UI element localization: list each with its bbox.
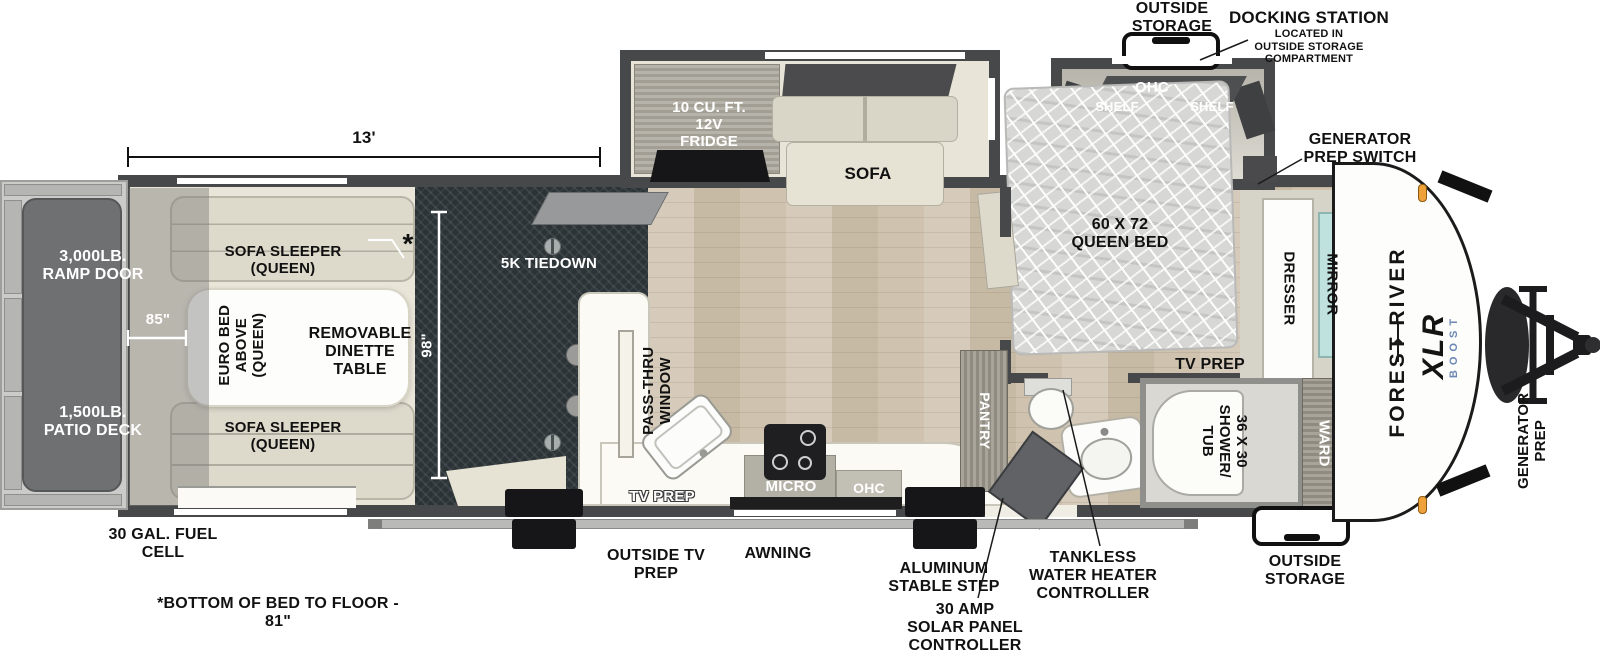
awning-end	[368, 519, 382, 529]
garage-depth-dim-label: 98"	[420, 325, 437, 365]
fuel-cell-label: 30 GAL. FUEL CELL	[103, 526, 223, 562]
model-block: XLR BOOST	[1416, 276, 1460, 416]
kitchen-ohc-label: OHC	[838, 481, 900, 497]
kitchen-window-strip	[730, 497, 902, 509]
kitchen-tv-prep-label: TV PREP	[617, 489, 707, 506]
ward-label: WARD	[1315, 413, 1332, 473]
brand-model: XLR	[1417, 313, 1451, 379]
pass-thru-window	[618, 330, 634, 458]
entry-step	[905, 487, 985, 517]
stable-step-label: ALUMINUM STABLE STEP	[874, 560, 1014, 596]
storage-handle-icon	[1284, 534, 1320, 541]
dresser-label: DRESSER	[1280, 243, 1297, 333]
sofa-slide-side-window	[988, 78, 995, 140]
sofa-sleeper-top-label: SOFA SLEEPER (QUEEN)	[213, 244, 353, 278]
outside-tv-prep-step	[512, 519, 576, 549]
pantry-label: PANTRY	[976, 386, 992, 456]
bed-height-note: *BOTTOM OF BED TO FLOOR - 81"	[143, 595, 413, 631]
fridge-label: 10 CU. FT. 12V FRIDGE	[649, 100, 769, 150]
docking-station-title: DOCKING STATION	[1219, 8, 1399, 27]
sofa-back	[772, 96, 958, 142]
vanity-basin	[1078, 434, 1135, 483]
sofa-window	[780, 64, 962, 100]
bath-vanity	[1059, 415, 1151, 500]
rv-floorplan: OUTSIDE STORAGE DOCKING STATION LOCATED …	[0, 0, 1600, 666]
patio-deck	[22, 198, 122, 492]
bedroom-ohc-label: OHC	[1122, 80, 1182, 97]
fridge-base	[650, 150, 770, 182]
clearance-light-icon	[1418, 496, 1427, 514]
awning-label: AWNING	[733, 545, 823, 563]
burner-icon	[772, 454, 788, 470]
outside-storage-top-label: OUTSIDE STORAGE	[1112, 0, 1232, 36]
euro-bed-label: EURO BED ABOVE (QUEEN)	[217, 290, 267, 400]
brand-block: ◆ FOREST RIVER	[1376, 222, 1420, 462]
ramp-rail-top	[4, 184, 122, 196]
solar-controller-label: 30 AMP SOLAR PANEL CONTROLLER	[895, 601, 1035, 655]
bedroom-tv-prep-label: TV PREP	[1160, 356, 1260, 374]
outside-tv-prep-label: OUTSIDE TV PREP	[596, 547, 716, 583]
storage-handle-icon	[1152, 37, 1190, 44]
stove	[764, 424, 826, 480]
fuel-cell-platform	[178, 486, 356, 508]
bedroom-slide-window-strip	[1112, 56, 1232, 64]
ramp-rail-left	[4, 396, 22, 490]
ramp-rail-bottom	[4, 494, 122, 506]
ramp-rail-left	[4, 200, 22, 294]
burner-icon	[798, 456, 812, 470]
mirror-label: MIRROR	[1323, 244, 1340, 324]
ramp-door-label: 3,000LB. RAMP DOOR	[30, 248, 156, 284]
asterisk-mark: *	[396, 228, 420, 259]
clearance-light-icon	[1418, 184, 1427, 202]
bottom-wall-window-left	[174, 509, 347, 515]
brand-trim: BOOST	[1448, 314, 1460, 378]
ramp-opening-dim-label: 85"	[138, 312, 178, 329]
ramp-interior-overlay	[129, 188, 209, 506]
shelf-right-label: SHELF	[1182, 100, 1242, 115]
bedroom-wall-upper	[1000, 187, 1011, 237]
bottom-wall-window-right	[734, 510, 896, 516]
pass-thru-label: PASS-THRU WINDOW	[641, 336, 675, 446]
faucet-icon	[1100, 427, 1109, 436]
queen-bed-label: 60 X 72 QUEEN BED	[1050, 216, 1190, 252]
tiedown-label: 5K TIEDOWN	[489, 256, 609, 273]
burner-icon	[800, 430, 816, 446]
dinette-label: REMOVABLE DINETTE TABLE	[300, 325, 420, 379]
sofa-sleeper-bottom-label: SOFA SLEEPER (QUEEN)	[213, 420, 353, 454]
main-wall-window-bed-right	[1243, 156, 1277, 182]
docking-station-sub: LOCATED IN OUTSIDE STORAGE COMPARTMENT	[1229, 28, 1389, 66]
toilet	[1028, 388, 1074, 430]
tiedown-anchor-icon	[544, 434, 561, 451]
length-dimension	[128, 147, 600, 167]
ramp-rail-left	[4, 298, 22, 392]
sofa-slide-window-strip	[765, 52, 965, 59]
tv-cabinet	[531, 192, 669, 225]
generator-prep-switch-label: GENERATOR PREP SWITCH	[1290, 131, 1430, 167]
top-wall-window	[177, 178, 347, 184]
entry-step	[913, 519, 977, 549]
shelf-left-label: SHELF	[1087, 100, 1147, 115]
tankless-label: TANKLESS WATER HEATER CONTROLLER	[1023, 549, 1163, 603]
shower-tub-label: 36 X 30 SHOWER/ TUB	[1199, 401, 1249, 481]
cap-stripe-top	[1438, 170, 1493, 202]
outside-storage-bottom-label: OUTSIDE STORAGE	[1245, 553, 1365, 589]
awning-end	[1184, 519, 1198, 529]
outside-tv-prep-step	[505, 489, 583, 517]
tiedown-anchor-icon	[544, 238, 561, 255]
awning-bar	[368, 519, 1198, 529]
generator-prep-label: GENERATOR PREP	[1516, 386, 1550, 496]
micro-label: MICRO	[749, 479, 833, 496]
length-dim-label: 13'	[344, 128, 384, 147]
patio-deck-label: 1,500LB. PATIO DECK	[30, 404, 156, 440]
sofa-label: SOFA	[838, 164, 898, 183]
